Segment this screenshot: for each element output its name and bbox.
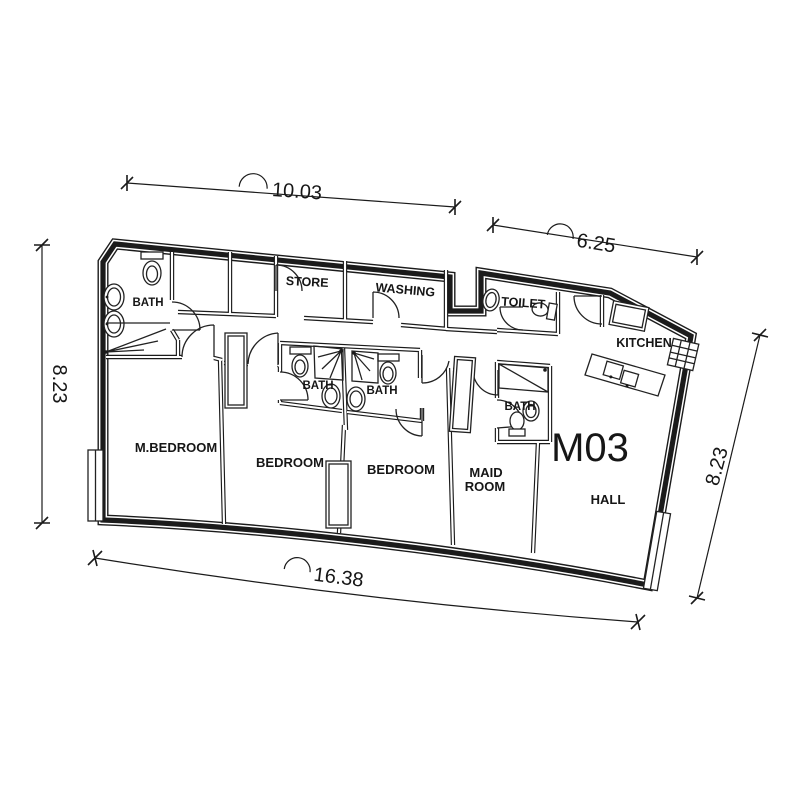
toilet-fixture-bath-2 [378,354,399,384]
room-label-maid-line-2: ROOM [465,479,505,494]
toilet-fixture-master [141,252,163,285]
toilet-fixture-bath-1 [290,347,311,377]
window-right [643,511,670,590]
room-label-bath-maid: BATH [504,401,535,413]
dimension-top-left: 10.03 [121,173,461,215]
room-labels: M03 M.BEDROOM BEDROOM BEDROOM MAID ROOM … [132,274,671,507]
room-label-bedroom-2: BEDROOM [367,462,435,477]
room-label-hall: HALL [591,492,626,507]
door-entrance [574,296,602,324]
room-label-bedroom-1: BEDROOM [256,455,324,470]
wardrobe-bedrooms [326,461,351,528]
arc-length-icon [547,222,575,239]
dimension-value-top-left: 10.03 [271,179,322,204]
shower-fixture-maid [499,364,548,392]
room-label-bath-1: BATH [302,380,333,392]
room-label-bath-master: BATH [132,297,163,309]
sink-fixture-master-2 [104,311,124,337]
dimension-left: 8.23 [34,239,70,529]
dimension-value-right: 8.23 [702,445,733,488]
room-label-kitchen: KITCHEN [616,336,672,350]
dimension-value-top-right: 6.25 [575,230,617,258]
window-left [88,450,103,521]
room-label-bath-2: BATH [366,385,397,397]
dimension-ticks [88,550,645,630]
room-label-washing: WASHING [375,280,436,299]
arc-length-icon [284,556,311,572]
kitchen-counter [585,354,665,396]
arc-length-icon [239,173,268,189]
shower-fixture-bath-2 [352,351,378,383]
room-label-store: STORE [285,274,329,290]
room-label-maid-line-1: MAID [469,465,502,480]
door-toilet [500,307,523,330]
door-maid-room [473,370,498,395]
dimension-bottom: 16.38 [88,550,645,630]
room-label-m-bedroom: M.BEDROOM [135,440,217,455]
toilet-fixture-maid [509,412,525,436]
door-bedroom-2 [422,355,449,383]
fixtures [104,252,699,436]
door-bedroom-1 [248,333,278,365]
dimension-value-bottom: 16.38 [312,564,364,592]
sink-fixture-master-1 [104,284,124,310]
sink-fixture-bath-2 [347,387,365,411]
dimension-value-left: 8.23 [48,365,70,404]
floor-plan-drawing: 10.03 6.25 8.23 8.23 16.38 [0,0,800,800]
unit-number-label: M03 [551,426,629,470]
room-label-toilet: TOILET [501,294,546,311]
dimension-top-right: 6.25 [487,217,703,265]
shower-fixture-bath-1 [314,346,343,380]
stove [667,338,698,370]
wardrobe-maid [449,356,475,432]
floor-plan-page: 10.03 6.25 8.23 8.23 16.38 [0,0,800,800]
dimension-right: 8.23 [689,329,768,604]
door-master-bath [172,302,200,330]
wardrobe-m-bedroom [225,333,247,408]
